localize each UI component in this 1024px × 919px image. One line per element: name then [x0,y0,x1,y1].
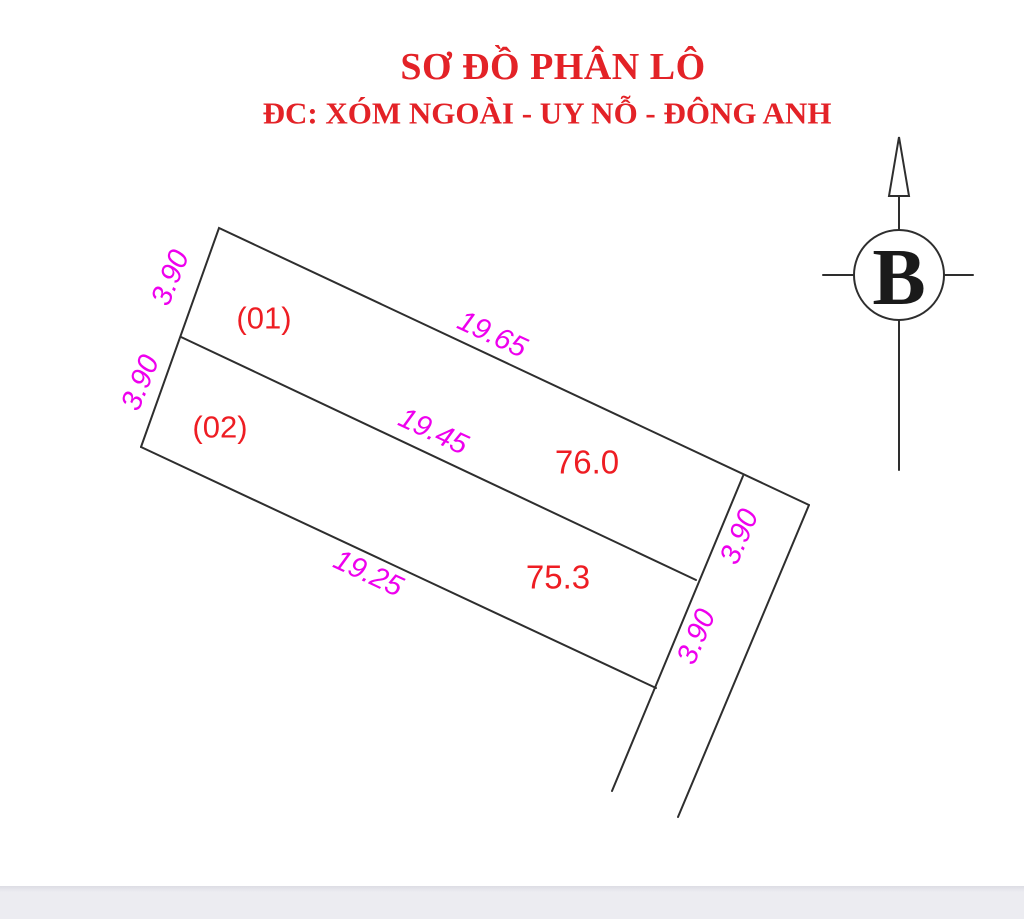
plot-subdivision-page: SƠ ĐỒ PHÂN LÔ ĐC: XÓM NGOÀI - UY NỖ - ĐÔ… [0,0,1024,919]
north-arrow-icon [889,137,909,196]
parcel-drawing [0,0,1024,919]
compass-north-letter: B [872,238,925,318]
plot01-id-label: (01) [236,303,291,334]
plot02-id-label: (02) [192,412,247,443]
bottom-gray-bar [0,886,1024,919]
plot01-area-label: 76.0 [555,446,619,479]
plot02-area-label: 75.3 [526,561,590,594]
road-inner-edge [612,476,743,791]
